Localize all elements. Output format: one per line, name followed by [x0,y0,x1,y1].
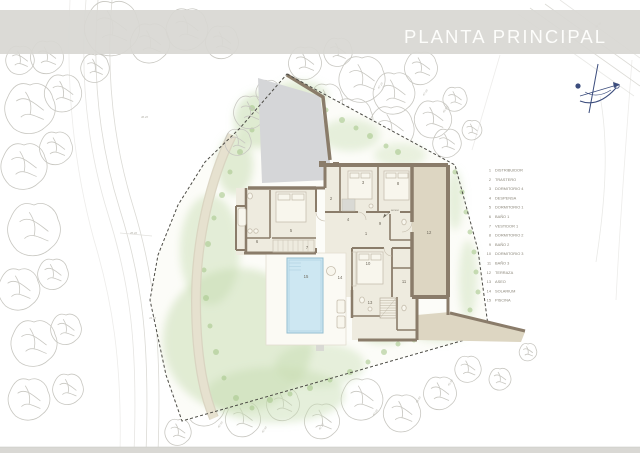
legend-label: DORMITORIO 1 [495,205,523,210]
toilet [402,219,406,225]
legend-num: 10 [487,251,492,256]
swimming-pool [287,258,323,333]
legend-num: 1 [489,168,491,173]
room-number-13: 13 [368,300,373,305]
legend-label: TERRAZA [495,270,514,275]
lounger [337,300,345,313]
legend-label: BAÑO 1 [495,214,509,219]
toilet [360,297,365,303]
toilet [402,305,406,311]
legend-num: 8 [489,233,491,238]
spot-label: 42.40 [261,425,269,433]
legend-num: 14 [487,288,492,293]
room-number-12: 12 [427,230,432,235]
legend-label: DORMITORIO 3 [495,251,523,256]
legend-num: 15 [487,298,491,303]
page-title: PLANTA PRINCIPAL [404,26,607,47]
legend-label: BAÑO 3 [495,261,509,266]
room-number-11: 11 [402,279,407,284]
legend-label: VESTIDOR 1 [495,223,518,228]
villa-building: acceso 1 2 3 4 5 6 7 8 9 10 11 12 13 14 … [236,165,525,351]
sink [369,204,373,208]
stairs [380,298,396,318]
legend-label: TRASTERO [495,177,516,182]
spot-label: 42.60 [217,420,225,428]
legend-num: 9 [489,242,491,247]
legend-label: BAÑO 2 [495,242,509,247]
spot-label: 45.40 [130,231,137,235]
table [327,267,336,276]
legend-num: 7 [489,223,491,228]
north-compass-icon [575,64,620,113]
toilet [248,193,253,199]
spot-label: 41.80 [415,395,423,403]
legend-label: DISTRIBUIDOR [495,168,523,173]
plan-drawing: acceso 1 2 3 4 5 6 7 8 9 10 11 12 13 14 … [0,0,640,453]
legend-num: 4 [489,195,492,200]
sheet-bottom-edge [0,447,640,453]
shower [342,199,355,211]
site-plan-sheet: acceso 1 2 3 4 5 6 7 8 9 10 11 12 13 14 … [0,0,640,453]
legend-num: 13 [487,279,491,284]
lounger [337,316,345,328]
legend-num: 11 [487,261,491,266]
spot-label: 44.80 [149,316,156,320]
spot-label: 46.20 [141,115,148,119]
legend-num: 6 [489,214,491,219]
legend-num: 12 [487,270,491,275]
bathtub [238,208,246,226]
room-number-14: 14 [338,275,343,280]
spot-label: 42.20 [318,422,326,430]
legend-label: PISCINA [495,298,511,303]
room-number-15: 15 [304,274,309,279]
entry-label: acceso [391,209,400,212]
sink [248,229,252,233]
room-legend: 1 DISTRIBUIDOR 2 TRASTERO 3 DORMITORIO 4… [487,168,525,303]
deck-equipment [316,345,324,351]
legend-num: 2 [489,177,491,182]
sink [368,307,372,311]
spot-label: 47.00 [422,88,430,96]
title-banner: PLANTA PRINCIPAL [0,10,640,54]
legend-label: DORMITORIO 2 [495,233,523,238]
legend-label: SOLARIUM [495,288,515,293]
legend-label: DORMITORIO 4 [495,186,524,191]
legend-label: DESPENSA [495,195,517,200]
room-number-10: 10 [366,261,371,266]
sink [254,229,258,233]
legend-num: 3 [489,186,491,191]
legend-label: ASEO [495,279,506,284]
legend-num: 5 [489,205,491,210]
